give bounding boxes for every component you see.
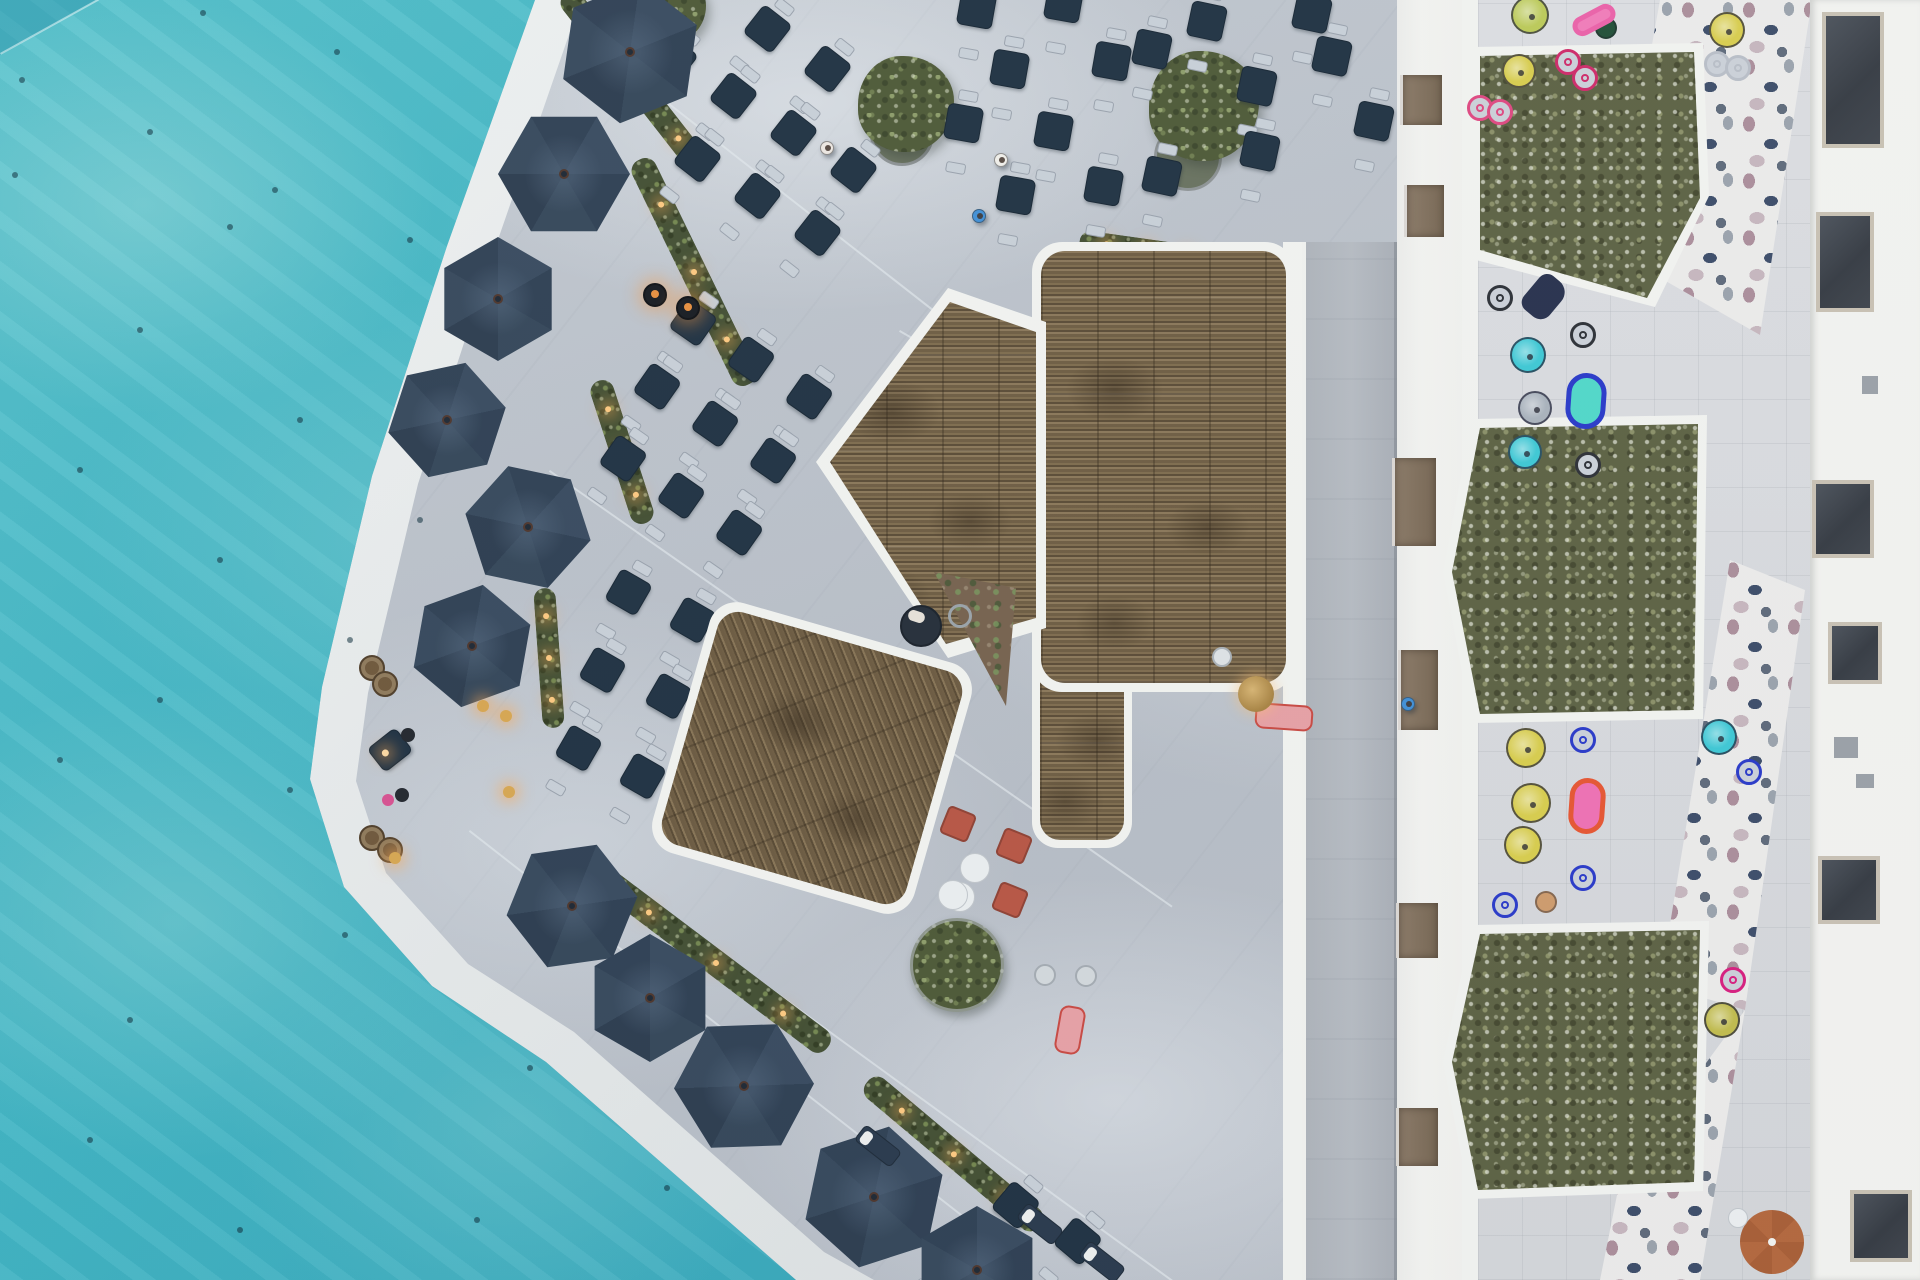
string-light bbox=[657, 201, 665, 209]
umbrella-hub bbox=[972, 1265, 982, 1275]
chair-swirl bbox=[1734, 64, 1742, 72]
umbrella-hub bbox=[739, 1081, 749, 1091]
terrace-ring-chair bbox=[1487, 99, 1513, 125]
pool-drain-dot bbox=[664, 1185, 670, 1191]
string-light bbox=[543, 613, 549, 619]
pool-drain-dot bbox=[297, 417, 303, 423]
pool-drain-dot bbox=[77, 467, 83, 473]
umbrella-hub bbox=[567, 901, 577, 911]
pink-towel bbox=[382, 794, 394, 806]
string-light bbox=[674, 134, 682, 142]
cafe-table bbox=[1353, 100, 1396, 143]
window-recess bbox=[1400, 75, 1442, 125]
pool-drain-dot bbox=[237, 1227, 243, 1233]
pool-drain-dot bbox=[12, 172, 18, 178]
window-recess bbox=[1396, 903, 1438, 958]
umbrella-hub bbox=[493, 294, 503, 304]
cafe-table bbox=[1043, 0, 1085, 24]
table-center bbox=[1721, 1019, 1727, 1025]
table-center bbox=[1518, 70, 1524, 76]
candle-light bbox=[380, 748, 390, 758]
building-window bbox=[1818, 856, 1880, 924]
pergola-main-roof bbox=[1041, 251, 1286, 683]
pool-drain-dot bbox=[200, 10, 206, 16]
round-daybed bbox=[900, 605, 942, 647]
cafe-table bbox=[1236, 65, 1279, 108]
building-roof-strip bbox=[1302, 242, 1397, 1280]
window-recess bbox=[1404, 185, 1444, 237]
pool-drain-dot bbox=[217, 557, 223, 563]
string-light bbox=[690, 268, 698, 276]
person bbox=[972, 209, 986, 223]
umbrella-hub bbox=[645, 993, 655, 1003]
floor-lamp bbox=[500, 710, 512, 722]
building-vent bbox=[1862, 376, 1878, 394]
capsule-sofa bbox=[1567, 777, 1607, 835]
umbrella-hub bbox=[467, 641, 477, 651]
table-center bbox=[1534, 407, 1540, 413]
cafe-table bbox=[1239, 130, 1282, 173]
rolled-towel bbox=[1082, 1246, 1098, 1263]
cafe-chair bbox=[1004, 35, 1026, 49]
bush-planter bbox=[910, 918, 1004, 1012]
terrace-ring-chair bbox=[1575, 452, 1601, 478]
cafe-chair bbox=[958, 89, 980, 103]
cafe-table bbox=[1033, 110, 1075, 152]
pool-drain-dot bbox=[147, 129, 153, 135]
terracotta-umbrella bbox=[1740, 1210, 1804, 1274]
string-light bbox=[546, 655, 552, 661]
cafe-table bbox=[1083, 165, 1125, 207]
terrace-ring-chair bbox=[1487, 285, 1513, 311]
terrace-ring-chair bbox=[1570, 727, 1596, 753]
cafe-chair bbox=[1106, 27, 1128, 41]
building-vent bbox=[1856, 774, 1874, 788]
table-center bbox=[1726, 29, 1732, 35]
chair-swirl bbox=[1745, 768, 1753, 776]
pool-drain-dot bbox=[347, 637, 353, 643]
pool-drain-dot bbox=[19, 77, 25, 83]
cafe-table bbox=[1141, 155, 1184, 198]
terrace-ring-chair bbox=[1572, 65, 1598, 91]
chair-swirl bbox=[1496, 294, 1504, 302]
wire-chair bbox=[1212, 647, 1232, 667]
pool-drain-dot bbox=[87, 1137, 93, 1143]
pool-drain-dot bbox=[287, 787, 293, 793]
table-center bbox=[1525, 747, 1531, 753]
string-light bbox=[723, 335, 731, 343]
fire-glow bbox=[684, 303, 692, 311]
table-center bbox=[1524, 451, 1530, 457]
pool-drain-dot bbox=[417, 517, 423, 523]
terrace-round-table bbox=[1701, 719, 1737, 755]
terrace-chair bbox=[1535, 891, 1557, 913]
umbrella-hub bbox=[559, 169, 569, 179]
table-center bbox=[1527, 354, 1533, 360]
side-table-white bbox=[960, 853, 990, 883]
pool-drain-dot bbox=[272, 187, 278, 193]
cafe-table bbox=[989, 48, 1031, 90]
table-center bbox=[1522, 844, 1528, 850]
chair-swirl bbox=[1579, 874, 1587, 882]
person bbox=[1401, 697, 1415, 711]
tree-planter-foliage bbox=[1452, 930, 1700, 1190]
terrace-ring-chair bbox=[1570, 322, 1596, 348]
chair-swirl bbox=[1729, 976, 1737, 984]
terrace-ring-chair bbox=[1570, 865, 1596, 891]
terrace-ring-chair bbox=[1492, 892, 1518, 918]
umbrella-hub bbox=[1768, 1238, 1776, 1246]
floor-lamp bbox=[477, 700, 489, 712]
person-head bbox=[999, 157, 1005, 163]
fire-bowl bbox=[676, 296, 700, 320]
person bbox=[820, 141, 834, 155]
pool-drain-dot bbox=[474, 1217, 480, 1223]
building-window bbox=[1850, 1190, 1912, 1262]
cafe-chair bbox=[1098, 152, 1120, 166]
seated-guest bbox=[395, 788, 409, 802]
building-window bbox=[1816, 212, 1874, 312]
cafe-table bbox=[1186, 0, 1229, 43]
pool-drain-dot bbox=[527, 1065, 533, 1071]
terrace-round-table bbox=[1709, 12, 1745, 48]
chair-swirl bbox=[1579, 736, 1587, 744]
string-light bbox=[712, 959, 720, 967]
window-recess bbox=[1396, 1108, 1438, 1166]
cafe-table bbox=[943, 102, 985, 144]
string-light bbox=[549, 697, 555, 703]
floor-lamp bbox=[389, 852, 401, 864]
table-center bbox=[1718, 736, 1724, 742]
string-light bbox=[632, 491, 640, 499]
terrace-round-table bbox=[1506, 728, 1546, 768]
terrace-ring-chair bbox=[1736, 759, 1762, 785]
umbrella-hub bbox=[869, 1192, 879, 1202]
chair-swirl bbox=[1496, 108, 1504, 116]
string-light bbox=[779, 1009, 787, 1017]
rattan-stool bbox=[372, 671, 398, 697]
terrace-round-table bbox=[1511, 783, 1551, 823]
side-table-white bbox=[938, 880, 968, 910]
wire-chair bbox=[1075, 965, 1097, 987]
garden-hose bbox=[948, 604, 972, 628]
person-head bbox=[1406, 701, 1412, 707]
pool-drain-dot bbox=[334, 49, 340, 55]
chair-swirl bbox=[1579, 331, 1587, 339]
building-window bbox=[1812, 480, 1874, 558]
terrace-round-table bbox=[1518, 391, 1552, 425]
building-window bbox=[1822, 12, 1884, 148]
cafe-table bbox=[1131, 28, 1174, 71]
building-window bbox=[1828, 622, 1882, 684]
pool-drain-dot bbox=[157, 697, 163, 703]
rolled-towel bbox=[858, 1130, 874, 1147]
string-light bbox=[645, 908, 653, 916]
chair-swirl bbox=[1581, 74, 1589, 82]
pool-drain-dot bbox=[137, 327, 143, 333]
wire-chair bbox=[1034, 964, 1056, 986]
seated-guest bbox=[401, 728, 415, 742]
aerial-resort-photo bbox=[0, 0, 1920, 1280]
rolled-towel bbox=[1020, 1208, 1036, 1225]
table-center bbox=[1529, 14, 1535, 20]
pool-drain-dot bbox=[407, 237, 413, 243]
pool-drain-dot bbox=[127, 1017, 133, 1023]
cafe-table bbox=[956, 0, 998, 30]
terrace-round-table bbox=[1502, 54, 1536, 88]
fire-glow bbox=[651, 290, 659, 298]
pool-drain-dot bbox=[342, 932, 348, 938]
chair-swirl bbox=[1501, 901, 1509, 909]
pool-drain-dot bbox=[227, 224, 233, 230]
pool-drain-dot bbox=[57, 757, 63, 763]
terrace-round-table bbox=[1510, 337, 1546, 373]
daybed-cushion bbox=[907, 609, 927, 625]
floor-lamp bbox=[503, 786, 515, 798]
window-recess bbox=[1398, 650, 1438, 730]
person bbox=[994, 153, 1008, 167]
terrace-round-table bbox=[1508, 435, 1542, 469]
person-head bbox=[977, 213, 983, 219]
umbrella-hub bbox=[523, 522, 533, 532]
chair-swirl bbox=[1584, 461, 1592, 469]
chair-swirl bbox=[1564, 58, 1572, 66]
building-vent bbox=[1834, 737, 1858, 758]
window-recess bbox=[1392, 458, 1436, 546]
chair-swirl bbox=[1713, 60, 1721, 68]
person-head bbox=[825, 145, 831, 151]
fire-bowl bbox=[643, 283, 667, 307]
string-light bbox=[604, 405, 612, 413]
string-light bbox=[897, 1106, 905, 1114]
gold-table bbox=[1238, 676, 1274, 712]
umbrella-hub bbox=[625, 47, 635, 57]
table-center bbox=[1530, 802, 1536, 808]
cafe-table bbox=[995, 174, 1037, 216]
cafe-chair bbox=[1010, 161, 1032, 175]
terrace-ring-chair bbox=[1725, 55, 1751, 81]
string-light bbox=[949, 1150, 957, 1158]
cafe-table bbox=[1311, 35, 1354, 78]
terrace-round-table bbox=[1504, 826, 1542, 864]
chair-swirl bbox=[1476, 104, 1484, 112]
side-table-white bbox=[1728, 1208, 1748, 1228]
cafe-chair bbox=[1048, 97, 1070, 111]
umbrella-hub bbox=[442, 415, 452, 425]
terrace-ring-chair bbox=[1720, 967, 1746, 993]
terrace-round-table bbox=[1704, 1002, 1740, 1038]
